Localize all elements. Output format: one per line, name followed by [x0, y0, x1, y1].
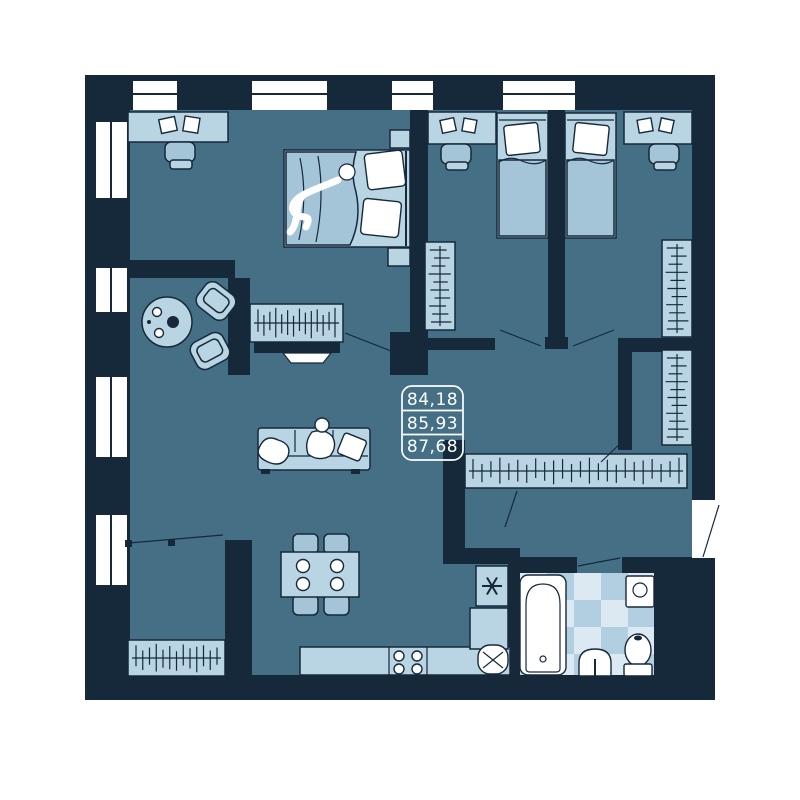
dining-chair [324, 595, 349, 615]
tv-stand-icon [283, 353, 331, 363]
desk-chair [649, 144, 679, 170]
desk-chair [441, 144, 471, 170]
paper-icon [637, 118, 653, 133]
window-left-4 [96, 515, 127, 585]
pillow-icon [360, 198, 402, 238]
double-bed [284, 130, 410, 266]
fridge [476, 566, 508, 606]
desk [128, 112, 228, 142]
pillow-icon [573, 122, 610, 155]
paper-icon [183, 116, 200, 133]
plate-icon [331, 578, 344, 591]
dining-chair [293, 595, 318, 615]
window-top-1 [133, 81, 177, 110]
nightstand [388, 248, 410, 266]
kitchen-sink [478, 645, 508, 674]
toilet [624, 634, 652, 676]
window-top-3 [392, 81, 433, 110]
cup-icon [155, 329, 164, 338]
dot-icon [147, 320, 151, 324]
teapot-icon [167, 316, 179, 328]
wardrobe [425, 242, 455, 330]
plate-icon [297, 560, 310, 573]
desk [428, 112, 496, 144]
entry-door-swing [703, 505, 719, 557]
plate-icon [297, 578, 310, 591]
desk-chair [165, 142, 195, 169]
entry-wardrobe [662, 350, 692, 445]
single-bed [497, 113, 548, 238]
dining-chair [324, 534, 349, 554]
plate-icon [331, 560, 344, 573]
desk [624, 112, 692, 144]
window-left-1 [96, 122, 127, 198]
wash-basin [579, 649, 611, 676]
window-left-2 [96, 268, 127, 312]
paper-icon [440, 118, 456, 134]
dining-table [281, 552, 359, 597]
paper-icon [462, 118, 477, 133]
area-value-1: 84,18 [407, 390, 458, 410]
floor-plan-page: 84,18 85,93 87,68 [0, 0, 800, 800]
hall-wardrobe [465, 454, 687, 488]
paper-icon [159, 116, 178, 133]
pillow-icon [504, 122, 541, 155]
window-left-3 [96, 377, 127, 457]
cup-icon [153, 308, 162, 317]
dining-chair [293, 534, 318, 554]
single-bed [565, 113, 616, 238]
area-value-3: 87,68 [407, 437, 458, 457]
window-top-4 [503, 81, 575, 110]
area-value-2: 85,93 [407, 414, 458, 434]
nightstand [390, 130, 410, 148]
window-top-2 [252, 81, 327, 110]
bathtub [520, 575, 566, 675]
tv [254, 342, 340, 353]
washing-machine [626, 576, 654, 607]
paper-icon [659, 118, 674, 133]
wardrobe [662, 240, 692, 337]
kitchen-counter-corner [470, 608, 508, 649]
apartment-floor-plan: 84,18 85,93 87,68 [0, 0, 800, 800]
pillow-icon [364, 150, 406, 190]
area-label: 84,18 85,93 87,68 [402, 386, 463, 460]
